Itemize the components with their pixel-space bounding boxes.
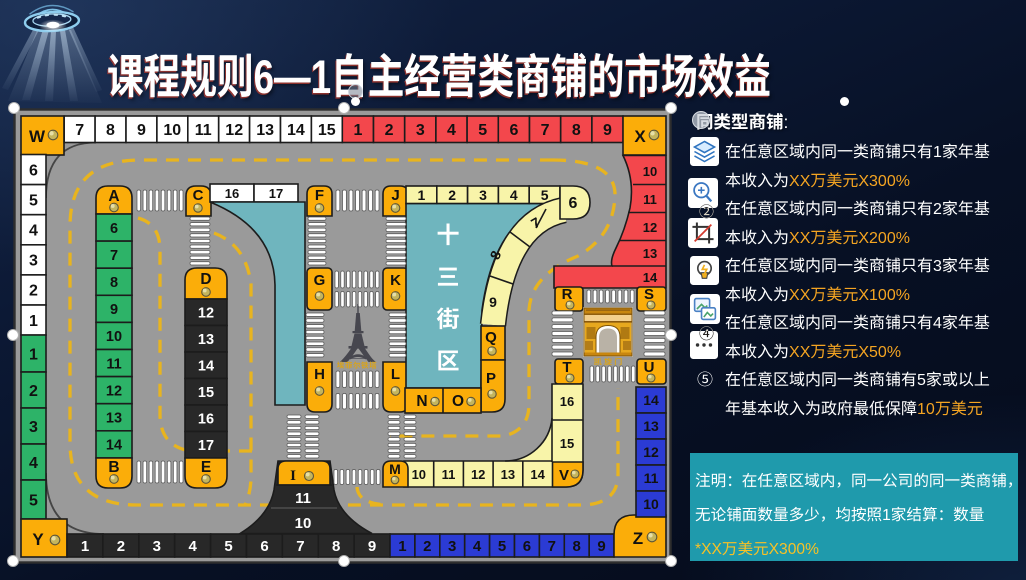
svg-text:M: M: [389, 461, 401, 477]
svg-text:5: 5: [29, 192, 38, 209]
svg-text:15: 15: [560, 436, 574, 451]
svg-text:3: 3: [448, 538, 456, 555]
svg-text:9: 9: [603, 122, 612, 139]
svg-text:8: 8: [573, 538, 581, 555]
svg-text:2: 2: [29, 283, 38, 300]
svg-text:T: T: [562, 359, 571, 376]
svg-text:D: D: [200, 271, 211, 288]
svg-text:11: 11: [195, 122, 212, 139]
svg-text:10: 10: [412, 467, 426, 482]
svg-text:B: B: [108, 459, 119, 476]
svg-text:10: 10: [643, 164, 657, 179]
svg-text:1: 1: [29, 313, 38, 330]
svg-text:凯 旋 门: 凯 旋 门: [594, 358, 622, 367]
svg-text:1: 1: [418, 187, 426, 203]
svg-text:12: 12: [225, 122, 243, 139]
svg-text:街: 街: [437, 306, 460, 332]
svg-text:2: 2: [29, 383, 38, 400]
svg-text:I: I: [290, 468, 296, 484]
svg-text:2: 2: [423, 538, 431, 555]
svg-text:4: 4: [29, 223, 38, 240]
svg-text:6: 6: [569, 195, 578, 212]
svg-text:11: 11: [106, 356, 121, 372]
svg-text:十: 十: [437, 222, 460, 248]
svg-text:2: 2: [448, 187, 456, 203]
svg-text:7: 7: [541, 122, 550, 139]
svg-text:G: G: [314, 272, 326, 289]
svg-text:9: 9: [597, 538, 605, 555]
svg-text:P: P: [486, 370, 496, 387]
svg-text:5: 5: [541, 187, 549, 203]
svg-text:16: 16: [560, 394, 574, 409]
svg-text:N: N: [416, 393, 427, 410]
svg-text:S: S: [644, 286, 654, 303]
svg-text:9: 9: [110, 302, 118, 318]
svg-text:8: 8: [572, 122, 581, 139]
svg-text:13: 13: [501, 467, 515, 482]
svg-text:1: 1: [81, 538, 89, 555]
svg-text:13: 13: [106, 411, 122, 427]
svg-text:3: 3: [29, 253, 38, 270]
svg-text:3: 3: [479, 187, 487, 203]
svg-text:14: 14: [198, 359, 214, 375]
svg-text:埃菲尔铁塔: 埃菲尔铁塔: [337, 361, 377, 370]
svg-text:12: 12: [643, 444, 659, 460]
svg-text:10: 10: [643, 496, 659, 512]
svg-text:6: 6: [260, 538, 268, 555]
svg-text:O: O: [452, 393, 464, 410]
svg-text:R: R: [562, 286, 573, 303]
svg-text:7: 7: [296, 538, 304, 555]
svg-text:1: 1: [29, 346, 38, 363]
svg-text:12: 12: [198, 306, 214, 322]
svg-text:Y: Y: [32, 530, 44, 549]
svg-text:10: 10: [106, 329, 122, 345]
svg-text:15: 15: [318, 122, 336, 139]
svg-text:12: 12: [643, 220, 657, 235]
svg-text:6: 6: [523, 538, 531, 555]
svg-text:4: 4: [189, 538, 198, 555]
svg-text:7: 7: [110, 248, 118, 264]
svg-text:A: A: [108, 188, 119, 205]
svg-text:6: 6: [29, 162, 38, 179]
svg-text:14: 14: [287, 122, 305, 139]
svg-text:8: 8: [110, 275, 118, 291]
svg-text:V: V: [559, 467, 569, 484]
svg-text:Q: Q: [485, 329, 497, 346]
svg-text:L: L: [391, 366, 400, 383]
svg-text:4: 4: [473, 538, 482, 555]
svg-text:4: 4: [29, 455, 38, 472]
svg-text:11: 11: [644, 470, 659, 486]
svg-text:13: 13: [643, 246, 657, 261]
svg-text:8: 8: [106, 122, 115, 139]
svg-text:6: 6: [509, 122, 518, 139]
svg-text:14: 14: [530, 467, 545, 482]
svg-text:三: 三: [437, 264, 460, 290]
svg-text:6: 6: [110, 221, 118, 237]
svg-text:13: 13: [643, 418, 659, 434]
svg-text:Z: Z: [633, 529, 643, 548]
svg-text:15: 15: [198, 385, 214, 401]
svg-text:4: 4: [447, 122, 456, 139]
svg-text:1: 1: [398, 538, 406, 555]
svg-text:3: 3: [153, 538, 161, 555]
svg-text:16: 16: [198, 412, 214, 428]
svg-text:5: 5: [224, 538, 232, 555]
svg-text:16: 16: [225, 186, 239, 201]
svg-text:7: 7: [548, 538, 556, 555]
svg-text:3: 3: [29, 419, 38, 436]
svg-text:11: 11: [295, 490, 311, 507]
svg-text:17: 17: [198, 438, 214, 454]
svg-text:E: E: [201, 459, 211, 476]
svg-text:J: J: [391, 187, 399, 204]
svg-text:8: 8: [332, 538, 340, 555]
svg-text:10: 10: [295, 515, 312, 532]
svg-text:2: 2: [117, 538, 125, 555]
svg-text:U: U: [644, 359, 655, 376]
svg-text:X: X: [634, 127, 646, 146]
svg-text:10: 10: [163, 122, 181, 139]
svg-text:5: 5: [478, 122, 487, 139]
svg-text:13: 13: [198, 332, 214, 348]
svg-text:F: F: [315, 187, 324, 204]
svg-text:4: 4: [510, 187, 518, 203]
svg-text:W: W: [29, 127, 46, 146]
svg-text:5: 5: [498, 538, 506, 555]
svg-text:K: K: [390, 272, 401, 289]
svg-text:11: 11: [442, 467, 456, 482]
svg-text:1: 1: [353, 122, 362, 139]
svg-text:5: 5: [29, 492, 38, 509]
svg-text:3: 3: [416, 122, 425, 139]
svg-text:9: 9: [137, 122, 146, 139]
svg-text:12: 12: [106, 383, 122, 399]
svg-text:11: 11: [643, 192, 657, 207]
svg-text:9: 9: [368, 538, 376, 555]
svg-text:H: H: [314, 366, 325, 383]
svg-text:13: 13: [256, 122, 274, 139]
svg-text:17: 17: [269, 186, 283, 201]
svg-text:2: 2: [385, 122, 394, 139]
svg-text:区: 区: [437, 348, 460, 374]
svg-text:9: 9: [489, 294, 497, 310]
svg-text:14: 14: [106, 438, 122, 454]
svg-text:14: 14: [643, 270, 658, 285]
svg-text:12: 12: [471, 467, 485, 482]
svg-text:7: 7: [75, 122, 84, 139]
svg-text:C: C: [193, 187, 204, 204]
svg-text:14: 14: [643, 392, 659, 408]
